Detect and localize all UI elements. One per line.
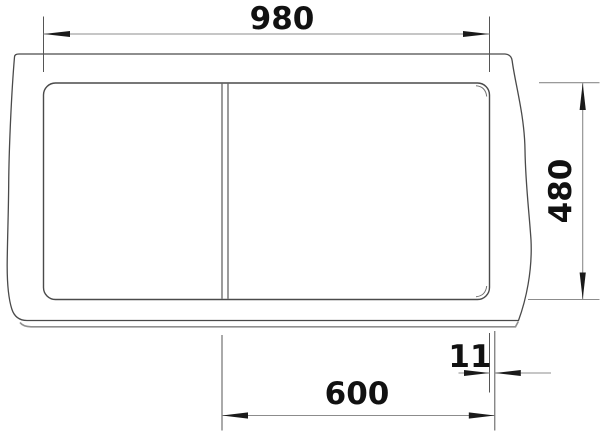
dim-label-bottom-width: 600 (307, 376, 407, 412)
dim-label-right-depth: 480 (543, 141, 579, 241)
technical-drawing-canvas: 980 480 600 11 (0, 0, 600, 434)
arrowhead-up (580, 83, 586, 110)
arrowhead-left (222, 412, 248, 418)
dim-label-edge-offset: 11 (420, 339, 520, 375)
arrowhead-down (580, 273, 586, 300)
arrowhead-right (469, 412, 495, 418)
sink-outer-outline (7, 54, 531, 327)
recess-corner-accent-top-right (476, 86, 487, 97)
bowl-divider (222, 84, 228, 299)
dim-label-top-width: 980 (232, 1, 332, 37)
sink-front-edge-line (20, 322, 518, 327)
sink-recess-outline (44, 83, 490, 300)
arrowhead-left (44, 31, 71, 37)
recess-corner-accent-bottom-right (476, 286, 487, 297)
arrowhead-right (463, 31, 490, 37)
